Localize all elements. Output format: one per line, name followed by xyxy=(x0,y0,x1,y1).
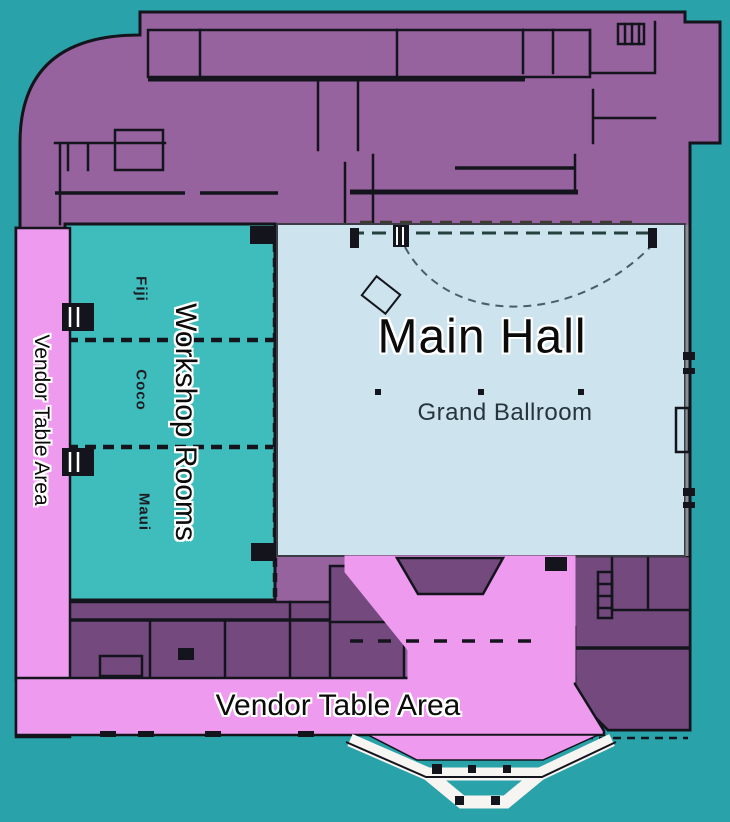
door-mark xyxy=(432,764,442,774)
door-mark xyxy=(455,796,464,805)
door-mark xyxy=(491,796,500,805)
door-mark xyxy=(503,765,511,773)
grand-ballroom-label: Grand Ballroom xyxy=(417,399,592,427)
venue-floor-plan: Main Hall Grand Ballroom Workshop Rooms … xyxy=(0,0,730,822)
door-mark xyxy=(468,765,476,773)
workshop-rooms-label: Workshop Rooms xyxy=(168,303,202,541)
vendor-area-bottom-label: Vendor Table Area xyxy=(216,689,461,723)
door-post xyxy=(393,225,409,247)
column-mark xyxy=(478,389,484,395)
room-label-coco: Coco xyxy=(133,369,150,411)
door-mark xyxy=(545,557,567,571)
door-mark xyxy=(251,543,275,561)
column-mark xyxy=(578,389,584,395)
room-label-maui: Maui xyxy=(136,493,153,531)
vendor-area-left-label: Vendor Table Area xyxy=(29,334,53,505)
room-label-fiji: Fiji xyxy=(133,276,150,302)
door-post xyxy=(648,228,657,248)
door-post xyxy=(350,228,359,248)
column-mark xyxy=(375,389,381,395)
door-mark xyxy=(178,648,194,660)
main-hall-label: Main Hall xyxy=(377,310,586,365)
service-rooms-bottom-left xyxy=(65,602,345,682)
door-mark xyxy=(250,226,274,244)
